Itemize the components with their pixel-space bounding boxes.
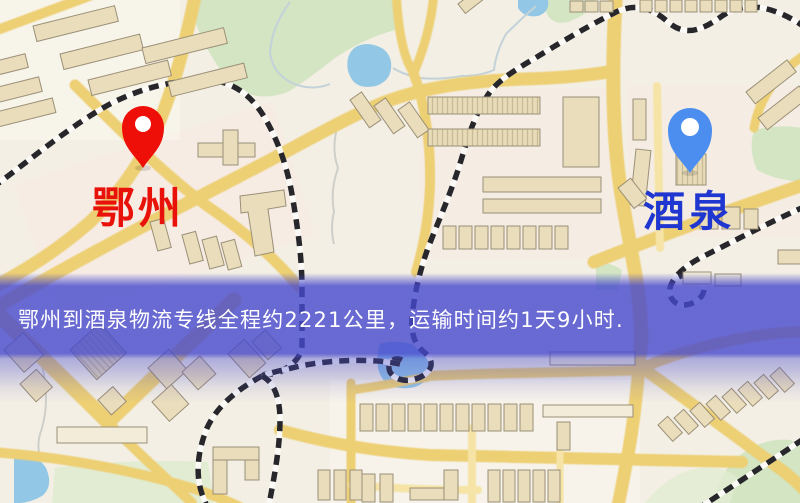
map-image — [0, 0, 800, 503]
route-banner-text: 鄂州到酒泉物流专线全程约2221公里，运输时间约1天9小时. — [18, 305, 788, 335]
map-screenshot: 鄂州 酒泉 鄂州到酒泉物流专线全程约2221公里，运输时间约1天9小时. — [0, 0, 800, 503]
destination-city-label: 酒泉 — [643, 178, 735, 239]
origin-city-label: 鄂州 — [92, 174, 184, 236]
